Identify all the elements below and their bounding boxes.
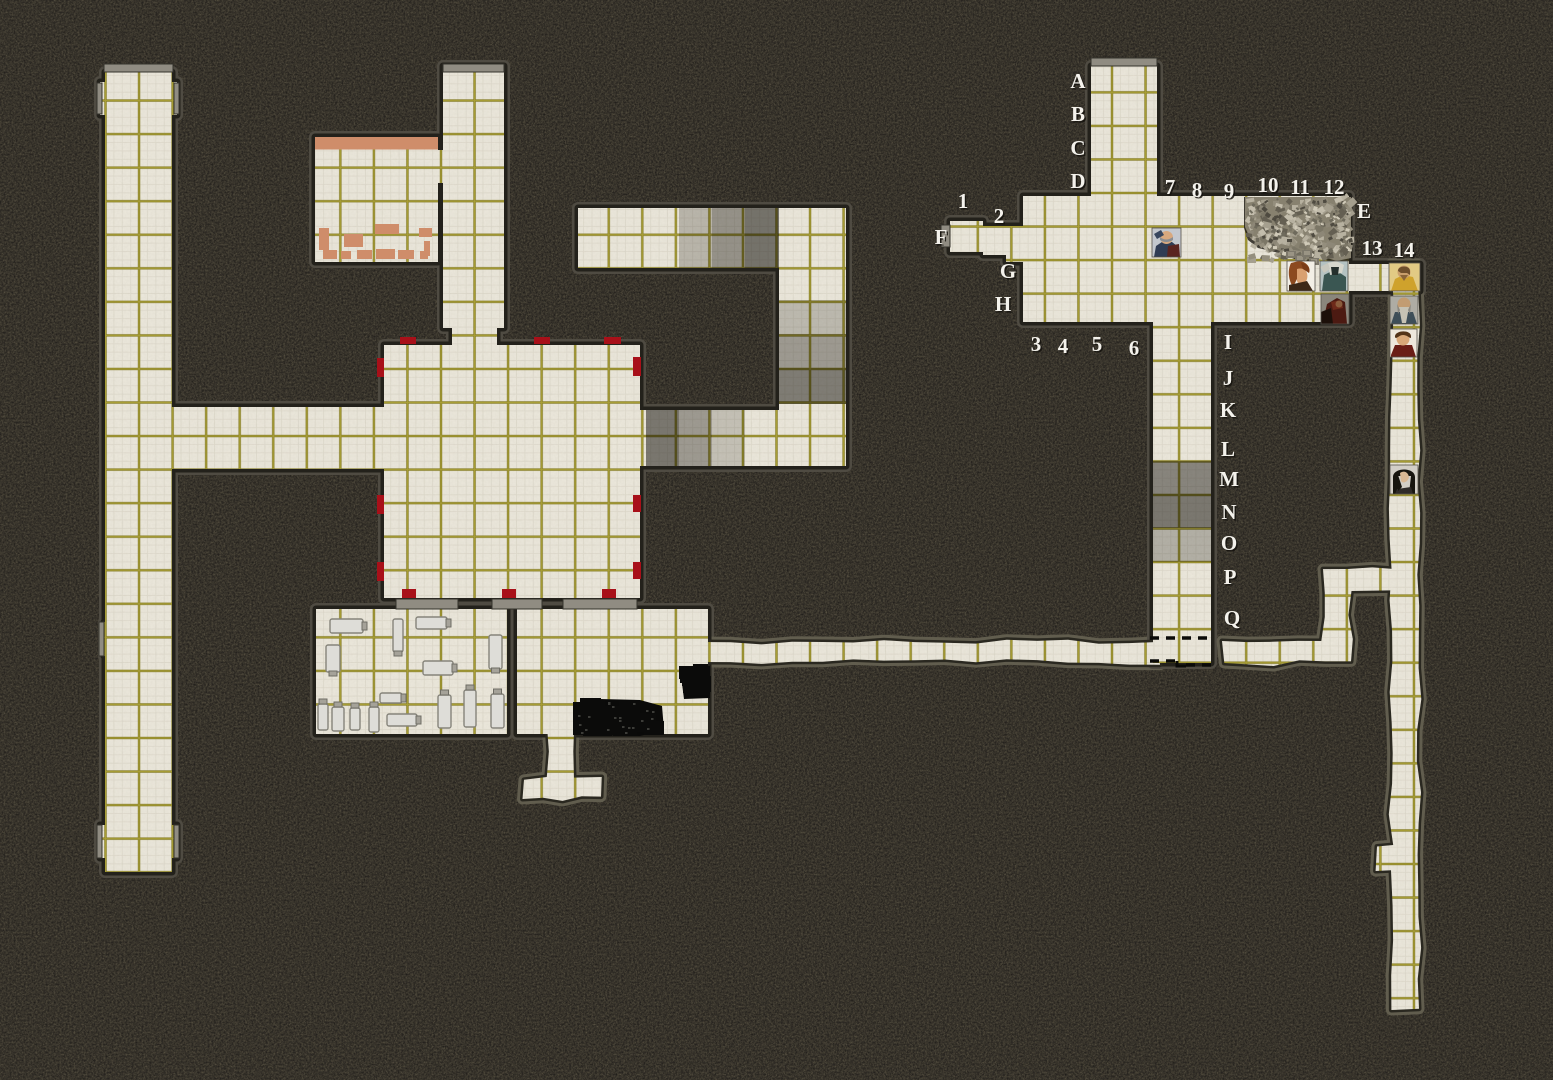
svg-text:13: 13 [1362,236,1383,260]
svg-text:H: H [995,292,1011,316]
svg-text:K: K [1220,398,1237,422]
svg-text:5: 5 [1092,332,1103,356]
svg-text:10: 10 [1258,173,1279,197]
svg-text:11: 11 [1290,175,1310,199]
svg-text:L: L [1221,437,1235,461]
svg-text:12: 12 [1324,175,1345,199]
svg-text:D: D [1070,169,1085,193]
svg-text:6: 6 [1129,336,1140,360]
svg-text:P: P [1224,565,1237,589]
svg-text:8: 8 [1192,178,1203,202]
svg-text:M: M [1219,467,1239,491]
svg-text:A: A [1070,69,1086,93]
svg-text:14: 14 [1394,238,1416,262]
svg-text:J: J [1223,366,1234,390]
svg-text:C: C [1070,136,1085,160]
svg-text:7: 7 [1165,175,1176,199]
svg-text:4: 4 [1058,334,1069,358]
svg-text:3: 3 [1031,332,1042,356]
svg-text:E: E [1357,199,1371,223]
svg-text:Q: Q [1224,606,1240,630]
svg-text:N: N [1221,500,1236,524]
svg-text:B: B [1071,102,1085,126]
svg-text:O: O [1221,531,1237,555]
svg-text:1: 1 [958,189,969,213]
svg-text:F: F [935,225,948,249]
svg-text:9: 9 [1224,179,1235,203]
svg-text:G: G [1000,259,1016,283]
svg-text:2: 2 [994,204,1005,228]
svg-text:I: I [1224,330,1232,354]
